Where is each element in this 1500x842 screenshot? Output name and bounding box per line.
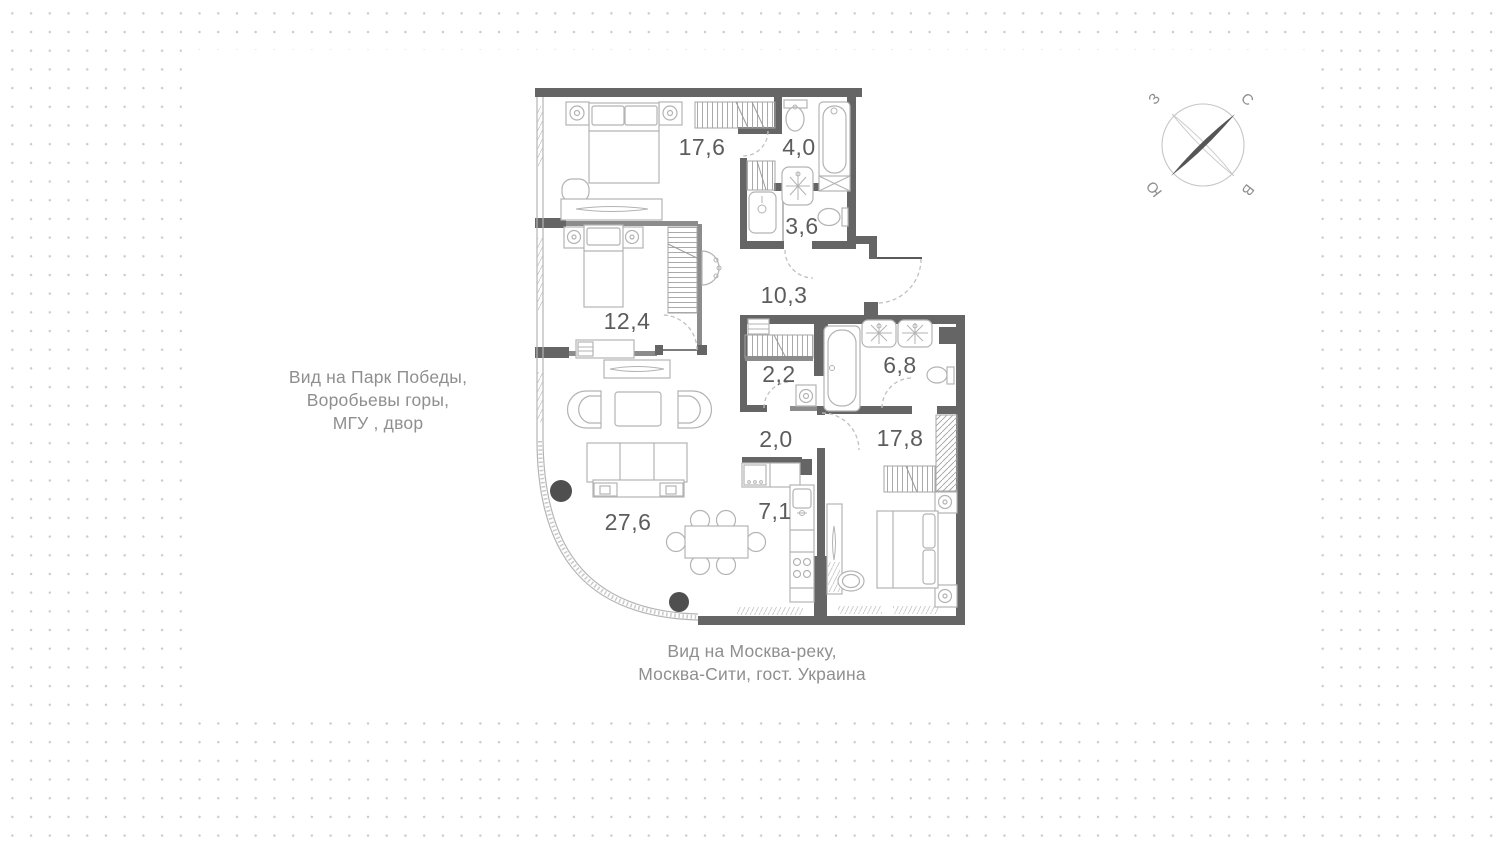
view-note-bottom: Вид на Москва-реку, Москва-Сити, гост. У… bbox=[616, 640, 888, 686]
hall-console bbox=[702, 251, 721, 285]
room-label-wardrobe: 2,2 bbox=[762, 361, 795, 387]
room-label-wc: 3,6 bbox=[785, 213, 818, 239]
room-label-corridor: 2,0 bbox=[759, 426, 792, 452]
view-note-line: Вид на Москва-реку, bbox=[616, 640, 888, 663]
view-note-line: МГУ , двор bbox=[268, 412, 488, 435]
compass-label-north: С bbox=[1237, 90, 1257, 110]
room-label-bathroom-2: 6,8 bbox=[883, 352, 916, 378]
room-label-kitchen: 7,1 bbox=[758, 498, 791, 524]
room-label-living: 27,6 bbox=[605, 509, 652, 535]
room-label-hallway: 10,3 bbox=[761, 282, 808, 308]
view-note-line: Вид на Парк Победы, bbox=[268, 366, 488, 389]
compass-label-south: Ю bbox=[1143, 178, 1166, 200]
floor-plan: 17,6 4,0 3,6 12,4 10,3 2,2 6,8 2,0 17,8 … bbox=[520, 80, 980, 640]
bedroom-2-furniture bbox=[564, 225, 643, 358]
compass-label-east: В bbox=[1238, 181, 1258, 199]
compass-rose: З С Ю В bbox=[1140, 82, 1265, 207]
room-label-bathroom-1: 4,0 bbox=[782, 134, 815, 160]
bedroom-1-furniture bbox=[561, 102, 682, 220]
view-note-line: Воробьевы горы, bbox=[268, 389, 488, 412]
view-note-line: Москва-Сити, гост. Украина bbox=[616, 663, 888, 686]
room-label-bedroom-2: 12,4 bbox=[604, 308, 651, 334]
room-label-bedroom-3: 17,8 bbox=[877, 425, 924, 451]
living-room-furniture bbox=[568, 360, 766, 575]
compass-label-west: З bbox=[1145, 90, 1164, 108]
view-note-left: Вид на Парк Победы, Воробьевы горы, МГУ … bbox=[268, 366, 488, 435]
room-label-bedroom-1: 17,6 bbox=[679, 134, 726, 160]
bedroom-3-furniture bbox=[827, 491, 957, 607]
